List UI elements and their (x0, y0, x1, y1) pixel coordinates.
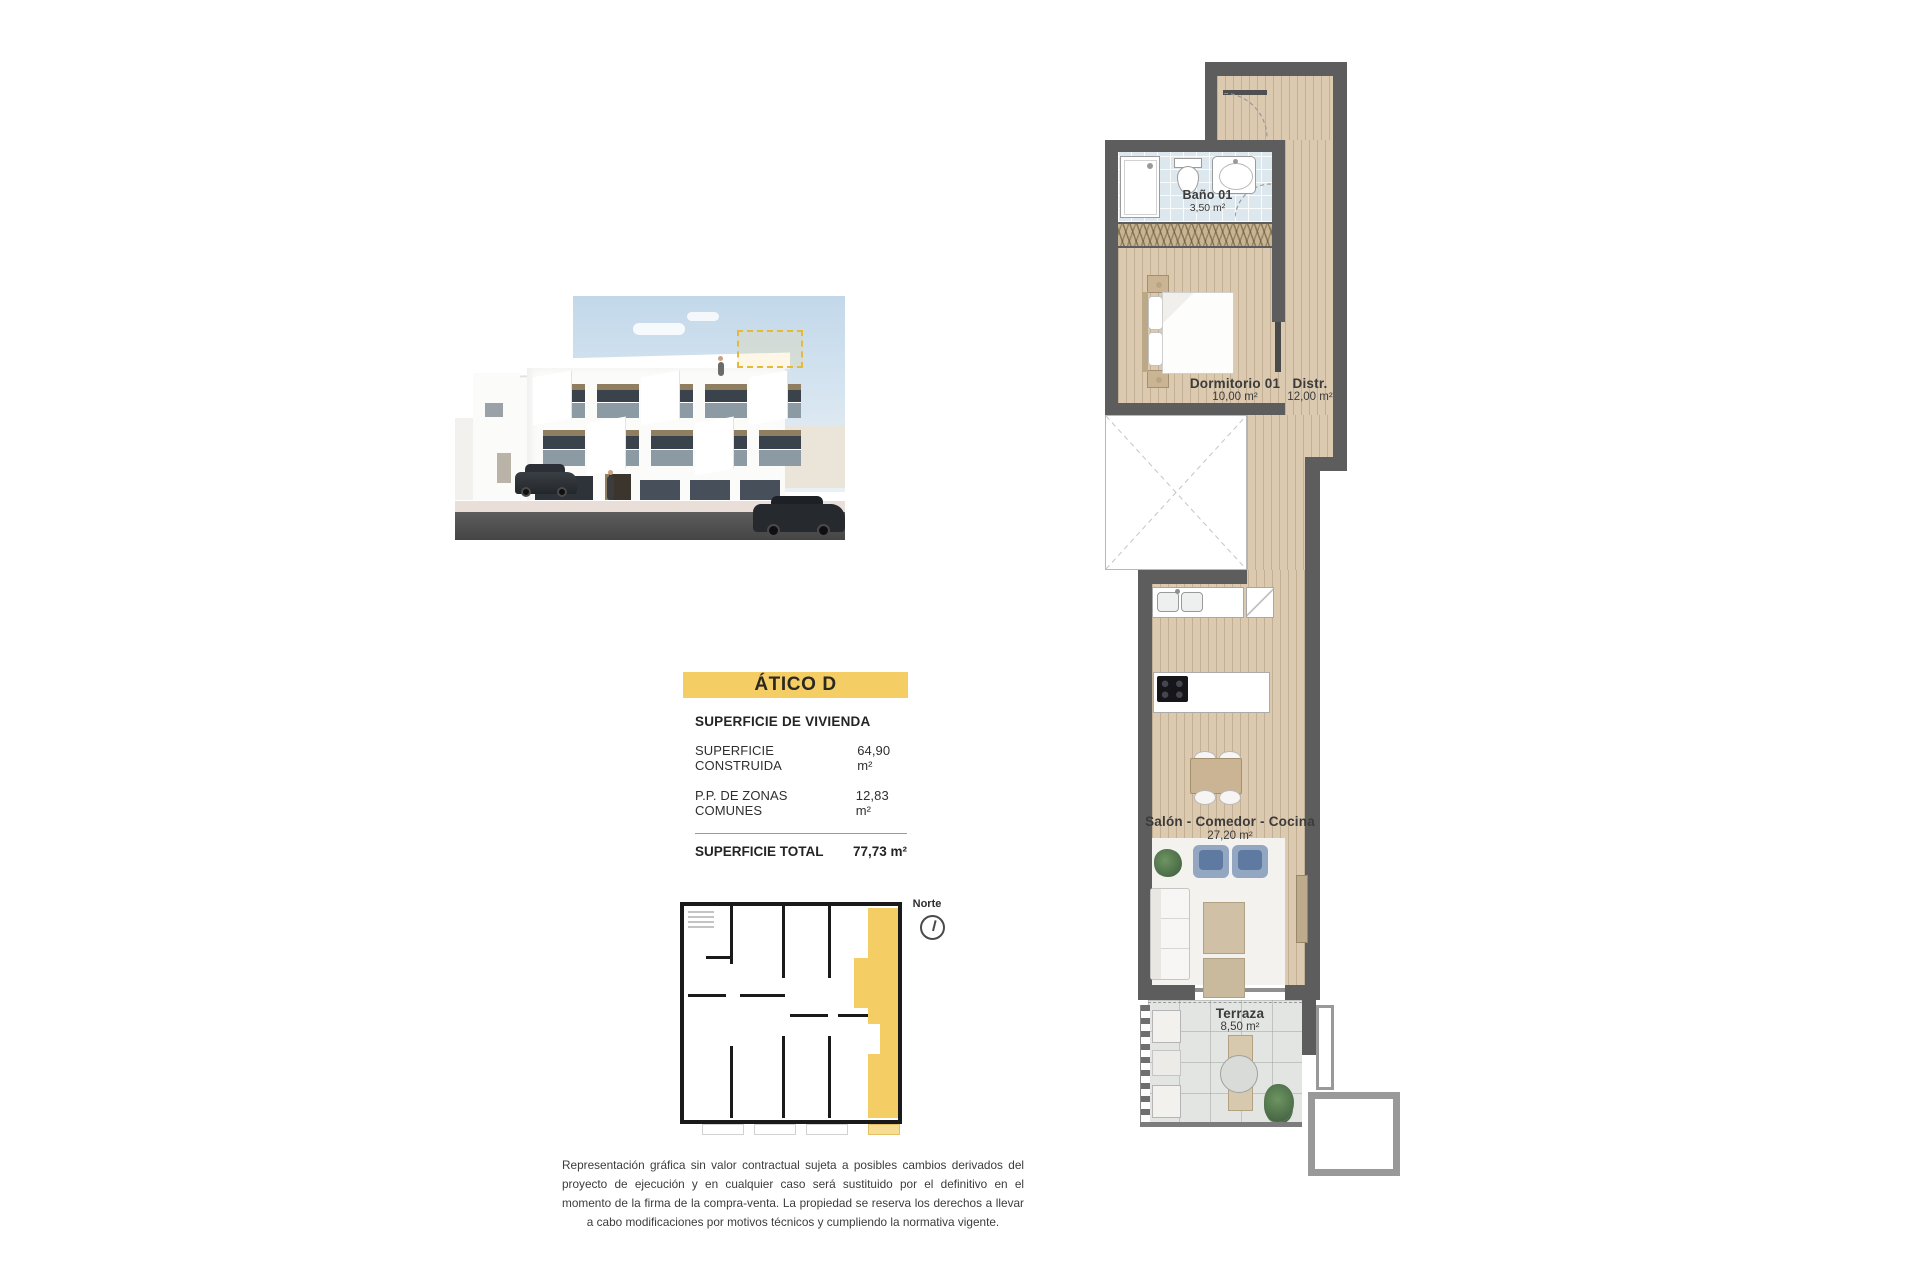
window (705, 384, 747, 418)
terrace-lounger (1152, 1010, 1181, 1043)
stairwell-void (1105, 415, 1247, 570)
key-plan: Norte (678, 896, 988, 1141)
north-label: Norte (902, 898, 952, 910)
car-wheel (557, 487, 567, 497)
car-wheel (521, 487, 531, 497)
surface-title: SUPERFICIE DE VIVIENDA (695, 714, 907, 729)
cloud (633, 323, 685, 335)
surface-row: SUPERFICIE CONSTRUIDA 64,90 m² (695, 743, 907, 773)
side-wall (455, 418, 475, 504)
key-plan-wall (782, 1036, 785, 1118)
window (759, 430, 801, 466)
key-plan-wall (828, 906, 831, 978)
window (597, 384, 639, 418)
balcony-panel (641, 371, 680, 426)
coffee-table (1203, 958, 1245, 998)
pillow (1148, 296, 1163, 330)
corridor-floor (1285, 140, 1333, 415)
balcony-panel (533, 371, 572, 426)
dining-chair (1219, 790, 1241, 805)
room-area: 8,50 m² (1160, 1021, 1320, 1033)
dining-chair (1194, 790, 1216, 805)
key-plan-wall (740, 994, 785, 997)
sink-basin (1219, 163, 1253, 190)
compass-needle (932, 920, 937, 931)
person-head (608, 470, 613, 475)
wall (1105, 152, 1118, 415)
sofa (1150, 888, 1190, 980)
room-area: 3,50 m² (1125, 202, 1290, 214)
terrace-edge (1140, 1122, 1302, 1127)
key-plan-wall (790, 1014, 828, 1017)
terrace-railing (1140, 1005, 1150, 1122)
car-wheel (817, 524, 830, 537)
kitchen-counter (1152, 587, 1244, 618)
room-area: 12,00 m² (1278, 391, 1342, 403)
terrace-lounger (1152, 1085, 1181, 1118)
corridor-floor (1247, 457, 1305, 584)
wardrobe (1118, 222, 1272, 248)
surface-row: P.P. DE ZONAS COMUNES 12,83 m² (695, 788, 907, 818)
neighbor-window (485, 403, 503, 417)
car-wheel (767, 524, 780, 537)
key-plan-unit-notch (868, 1024, 880, 1054)
terrace-door (1296, 875, 1308, 943)
terrace-seat (1152, 1050, 1181, 1076)
surface-row-value: 64,90 m² (857, 743, 907, 773)
bed (1162, 292, 1234, 374)
wall (1138, 570, 1247, 584)
key-plan-balcony (754, 1124, 796, 1135)
terrace-threshold (1148, 1002, 1302, 1003)
surface-row-value: 12,83 m² (856, 788, 907, 818)
sink-basin (1181, 592, 1203, 612)
key-plan-wall (838, 1014, 868, 1017)
legal-disclaimer: Representación gráfica sin valor contrac… (562, 1156, 1024, 1232)
surface-row-label: P.P. DE ZONAS COMUNES (695, 788, 856, 818)
kitchen-faucet (1175, 589, 1180, 594)
key-plan-wall (730, 1046, 733, 1118)
cloud (687, 312, 719, 321)
key-plan-unit-highlight (854, 958, 868, 1008)
unit-title-banner: ÁTICO D (683, 672, 908, 698)
brochure-page: ÁTICO D SUPERFICIE DE VIVIENDA SUPERFICI… (0, 0, 1920, 1280)
building-render (455, 268, 845, 540)
neighbor-terrace (1308, 1092, 1400, 1176)
room-name: Salón - Comedor - Cocina (1125, 814, 1335, 829)
pillow (1148, 332, 1163, 366)
window (651, 430, 693, 466)
wall (1205, 62, 1217, 152)
north-compass-icon (920, 915, 945, 940)
kitchen-island (1153, 672, 1270, 713)
key-plan-wall (828, 1036, 831, 1118)
corridor-floor (1247, 415, 1333, 457)
neighbor-structure (1316, 1005, 1334, 1090)
plant (1154, 849, 1182, 877)
window (543, 430, 585, 466)
armchair (1193, 845, 1229, 878)
wall (1105, 403, 1285, 415)
key-plan-balcony (702, 1124, 744, 1135)
unit-highlight-box (737, 330, 803, 368)
key-plan-wall (688, 994, 726, 997)
floor-plan: Baño 01 3,50 m² Dormitorio 01 10,00 m² D… (1090, 30, 1410, 1180)
wall (1305, 457, 1347, 471)
surface-total-value: 77,73 m² (853, 844, 907, 859)
terrace-table (1220, 1055, 1258, 1093)
room-area: 27,20 m² (1125, 830, 1335, 842)
nightstand (1147, 275, 1169, 293)
balcony-panel (695, 417, 734, 476)
key-plan-wall (706, 956, 730, 959)
wall (1272, 140, 1285, 322)
neighbor-door (497, 453, 511, 483)
person (718, 362, 724, 376)
bedroom-door-leaf (1275, 322, 1281, 372)
coffee-table (1203, 902, 1245, 954)
room-name: Terraza (1160, 1006, 1320, 1021)
sink-faucet (1233, 159, 1238, 164)
wall (1138, 985, 1195, 1000)
wall (1205, 62, 1333, 76)
room-name: Distr. (1286, 376, 1334, 391)
divider (695, 833, 907, 834)
key-plan-unit-highlight (868, 908, 898, 1118)
key-plan-balcony (806, 1124, 848, 1135)
key-plan-stairs (688, 908, 714, 932)
wall (1105, 140, 1285, 152)
stairwell-diagonals (1106, 416, 1246, 569)
cooktop (1157, 676, 1188, 702)
balcony-panel (749, 371, 788, 426)
surface-row-label: SUPERFICIE CONSTRUIDA (695, 743, 857, 773)
key-plan-balcony (868, 1124, 900, 1135)
person (607, 476, 614, 500)
surface-total-row: SUPERFICIE TOTAL 77,73 m² (695, 844, 907, 859)
balcony-panel (587, 417, 626, 476)
shower-drain (1147, 163, 1153, 169)
key-plan-wall (782, 906, 785, 978)
armchair (1232, 845, 1268, 878)
entry-door-arc (1221, 93, 1269, 141)
dining-table (1190, 758, 1242, 794)
wall (1285, 985, 1305, 1000)
surface-total-label: SUPERFICIE TOTAL (695, 844, 824, 859)
person-head (718, 356, 723, 361)
room-name: Baño 01 (1125, 188, 1290, 202)
appliance (1246, 587, 1274, 618)
sink-basin (1157, 592, 1179, 612)
key-plan-wall (730, 906, 733, 964)
surface-table: SUPERFICIE DE VIVIENDA SUPERFICIE CONSTR… (695, 714, 907, 859)
